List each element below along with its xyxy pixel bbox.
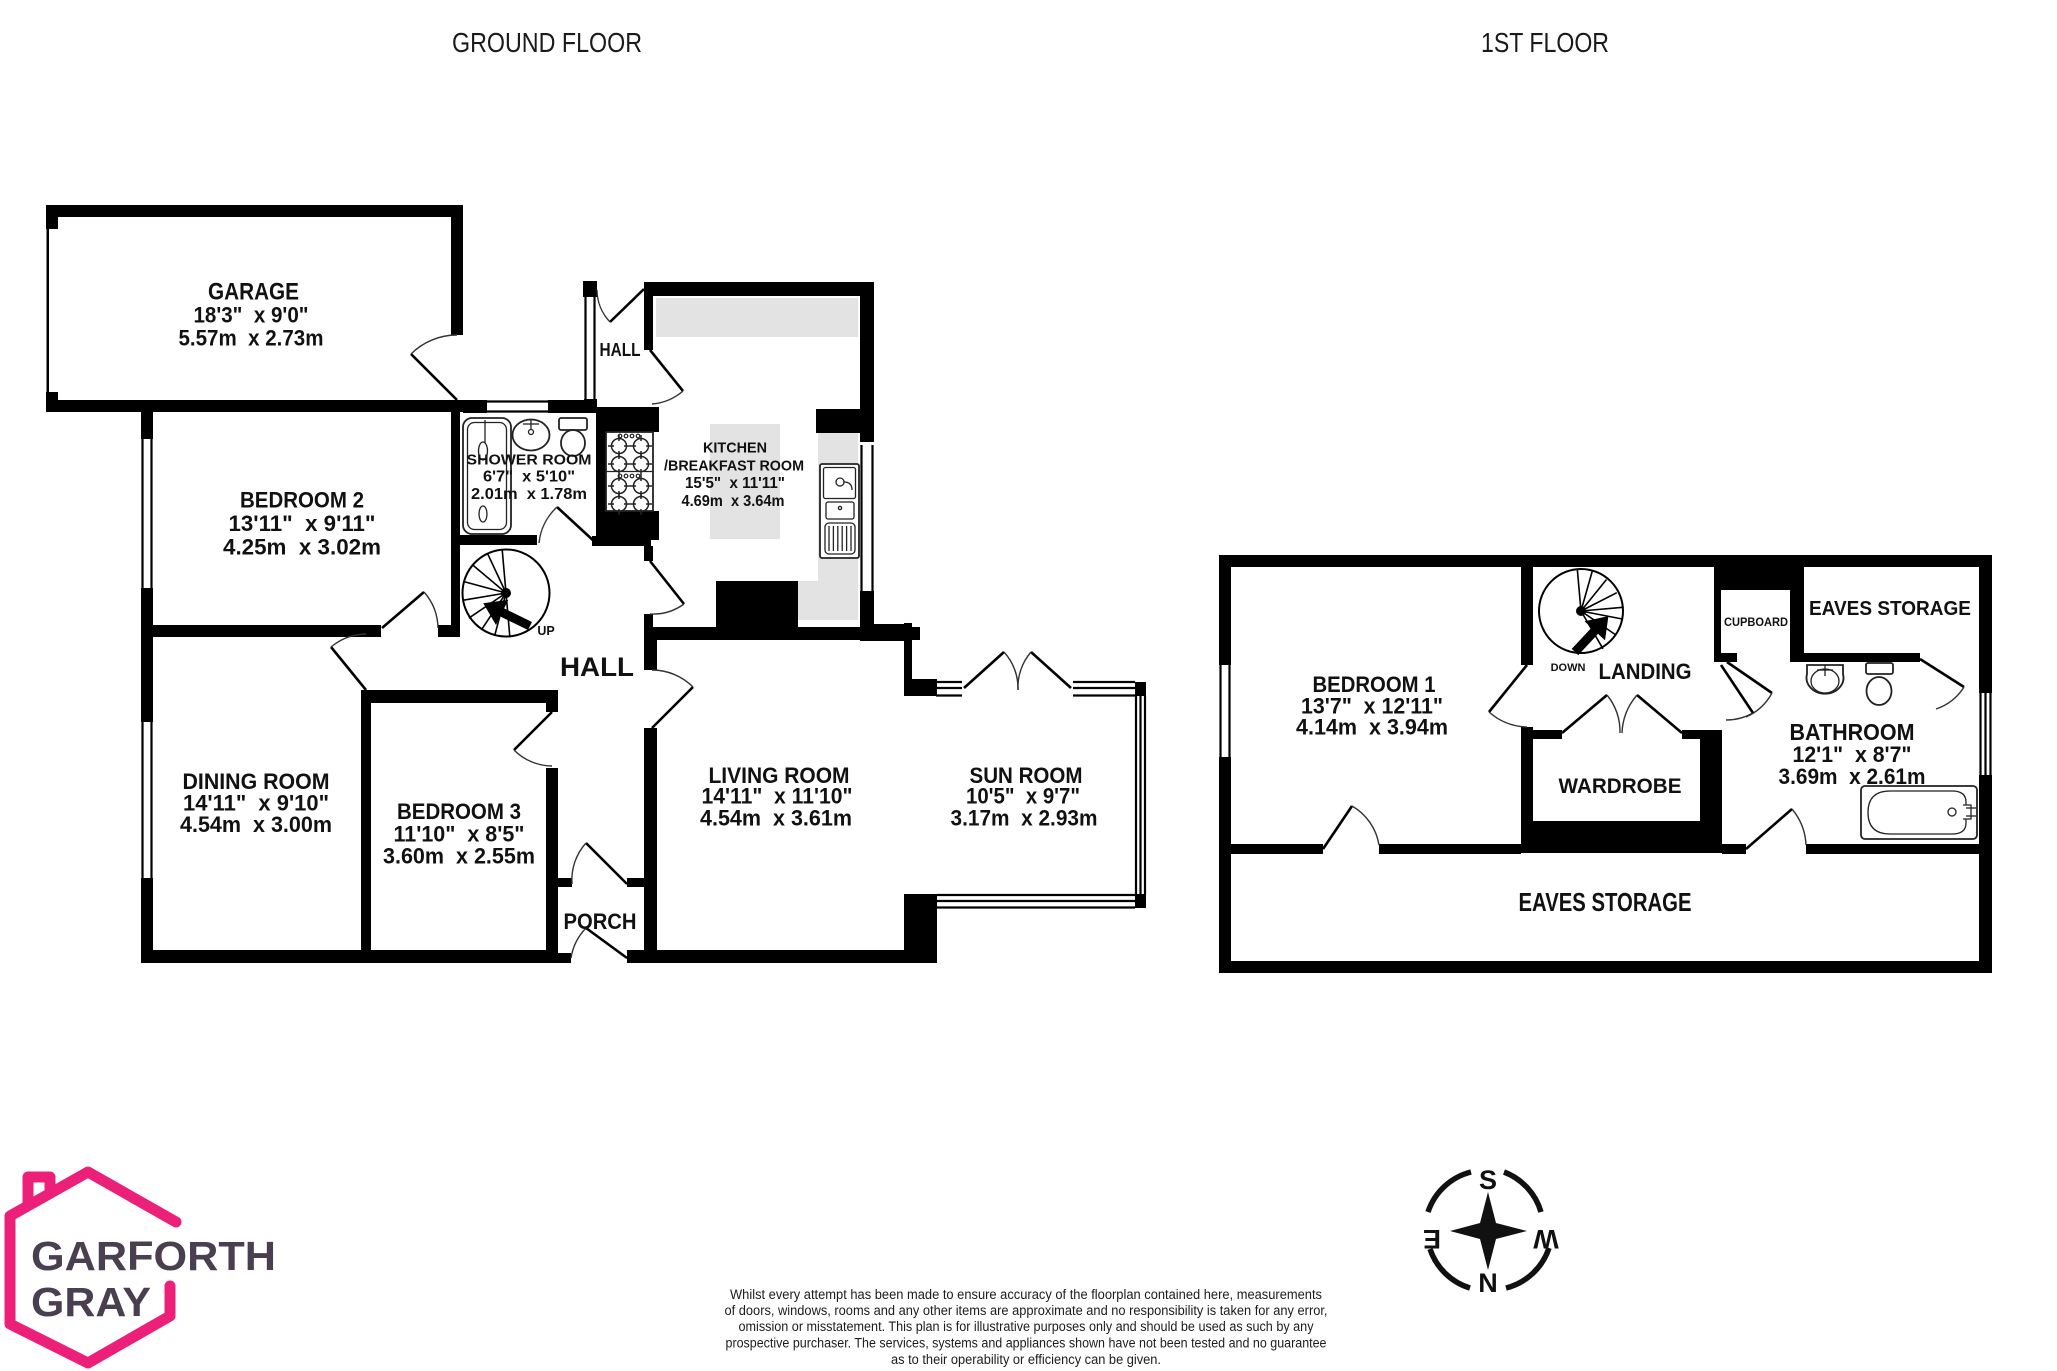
svg-text:1ST FLOOR: 1ST FLOOR bbox=[1481, 27, 1609, 58]
svg-text:4.14m x 3.94m: 4.14m x 3.94m bbox=[1296, 715, 1448, 740]
svg-text:GRAY: GRAY bbox=[31, 1279, 151, 1325]
svg-text:PORCH: PORCH bbox=[564, 909, 637, 934]
svg-text:WARDROBE: WARDROBE bbox=[1559, 775, 1682, 798]
svg-text:BEDROOM 3: BEDROOM 3 bbox=[397, 799, 521, 824]
svg-text:S: S bbox=[1479, 1165, 1497, 1195]
svg-text:as to their operability or eff: as to their operability or efficiency ca… bbox=[891, 1352, 1161, 1367]
svg-text:EAVES STORAGE: EAVES STORAGE bbox=[1519, 887, 1692, 917]
svg-text:4.54m x 3.61m: 4.54m x 3.61m bbox=[700, 806, 852, 831]
svg-text:EAVES STORAGE: EAVES STORAGE bbox=[1809, 598, 1971, 620]
svg-text:prospective purchaser. The ser: prospective purchaser. The services, sys… bbox=[726, 1336, 1327, 1351]
svg-text:3.60m x 2.55m: 3.60m x 2.55m bbox=[383, 844, 535, 869]
svg-text:DOWN: DOWN bbox=[1551, 662, 1586, 674]
svg-text:GROUND FLOOR: GROUND FLOOR bbox=[452, 27, 642, 58]
svg-text:N: N bbox=[1478, 1268, 1498, 1298]
svg-text:4.69m x 3.64m: 4.69m x 3.64m bbox=[682, 493, 785, 510]
svg-text:UP: UP bbox=[537, 624, 554, 638]
svg-text:HALL: HALL bbox=[600, 340, 641, 360]
svg-text:4.25m x 3.02m: 4.25m x 3.02m bbox=[223, 535, 381, 560]
svg-text:GARFORTH: GARFORTH bbox=[31, 1233, 276, 1279]
svg-text:BEDROOM 2: BEDROOM 2 bbox=[240, 488, 364, 513]
svg-text:SHOWER ROOM: SHOWER ROOM bbox=[467, 453, 592, 469]
svg-text:5.57m x 2.73m: 5.57m x 2.73m bbox=[179, 326, 324, 351]
svg-text:W: W bbox=[1533, 1224, 1559, 1254]
svg-text:13'11" x 9'11": 13'11" x 9'11" bbox=[229, 511, 376, 536]
svg-text:18'3" x 9'0": 18'3" x 9'0" bbox=[194, 303, 309, 328]
svg-text:omission or misstatement. This: omission or misstatement. This plan is f… bbox=[739, 1319, 1314, 1334]
svg-text:Whilst every attempt has been: Whilst every attempt has been made to en… bbox=[730, 1287, 1322, 1302]
svg-text:HALL: HALL bbox=[560, 652, 634, 682]
svg-text:CUPBOARD: CUPBOARD bbox=[1724, 615, 1788, 629]
svg-text:2.01m x 1.78m: 2.01m x 1.78m bbox=[471, 486, 587, 503]
svg-text:6'7" x 5'10": 6'7" x 5'10" bbox=[483, 469, 575, 486]
svg-text:/BREAKFAST ROOM: /BREAKFAST ROOM bbox=[664, 458, 804, 475]
svg-text:KITCHEN: KITCHEN bbox=[703, 440, 767, 457]
svg-text:4.54m x 3.00m: 4.54m x 3.00m bbox=[180, 812, 332, 837]
svg-text:15'5" x 11'11": 15'5" x 11'11" bbox=[685, 475, 785, 492]
svg-text:of doors, windows, rooms and a: of doors, windows, rooms and any other i… bbox=[725, 1303, 1328, 1318]
svg-text:E: E bbox=[1423, 1224, 1441, 1254]
svg-text:GARAGE: GARAGE bbox=[208, 279, 299, 306]
svg-text:LANDING: LANDING bbox=[1599, 659, 1692, 684]
svg-text:3.17m x 2.93m: 3.17m x 2.93m bbox=[951, 806, 1098, 831]
svg-text:3.69m x 2.61m: 3.69m x 2.61m bbox=[1779, 764, 1926, 789]
